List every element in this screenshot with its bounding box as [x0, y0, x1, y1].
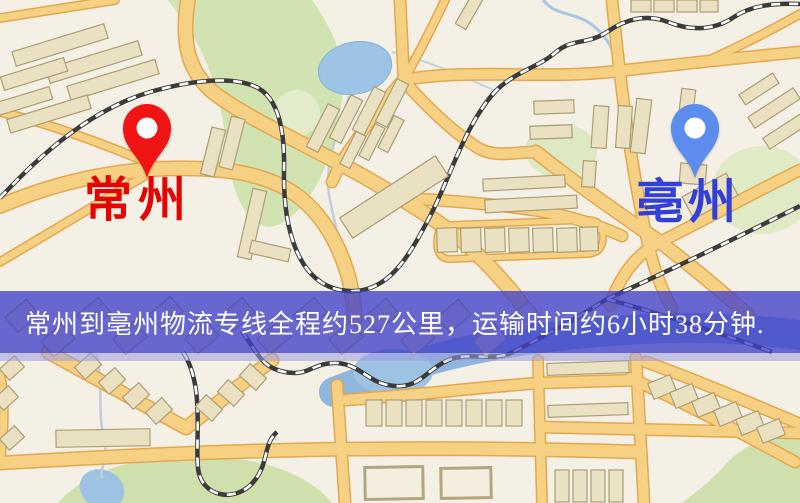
map-canvas[interactable]	[0, 0, 800, 503]
building	[591, 106, 609, 149]
road	[400, 0, 404, 82]
building	[533, 228, 554, 253]
road	[0, 372, 4, 465]
route-info-text: 常州到亳州物流专线全程约527公里，运输时间约6小时38分钟.	[0, 304, 765, 341]
building	[609, 470, 623, 502]
origin-pin-hole	[137, 118, 158, 139]
building	[441, 468, 492, 499]
building	[485, 228, 506, 253]
building	[591, 470, 605, 502]
building	[365, 466, 424, 499]
building	[580, 227, 599, 252]
building	[677, 0, 697, 12]
route-info-banner: 常州到亳州物流专线全程约527公里，运输时间约6小时38分钟.	[0, 291, 800, 353]
building	[573, 470, 587, 502]
building	[509, 228, 530, 253]
building	[557, 228, 578, 253]
building	[486, 400, 502, 426]
building	[466, 400, 482, 426]
route-info-banner-edge	[0, 353, 800, 361]
building	[386, 400, 402, 426]
building	[506, 400, 522, 426]
building	[654, 0, 674, 12]
building	[426, 400, 442, 426]
building	[366, 400, 382, 426]
building	[446, 400, 462, 426]
building	[631, 0, 651, 12]
building	[547, 361, 629, 376]
building	[437, 228, 458, 253]
map-screenshot: 常州 亳州 常州到亳州物流专线全程约527公里，运输时间约6小时38分钟.	[0, 0, 800, 503]
building	[461, 228, 482, 253]
destination-pin-hole	[685, 118, 706, 139]
building	[530, 125, 572, 139]
building	[56, 429, 150, 448]
building	[616, 106, 633, 149]
building	[534, 100, 574, 114]
building	[700, 0, 718, 12]
origin-city-label: 常州	[84, 177, 192, 225]
building	[406, 400, 422, 426]
road	[538, 360, 542, 503]
destination-city-label: 亳州	[636, 179, 740, 227]
building	[548, 403, 628, 418]
building	[582, 161, 597, 188]
building	[555, 470, 569, 502]
